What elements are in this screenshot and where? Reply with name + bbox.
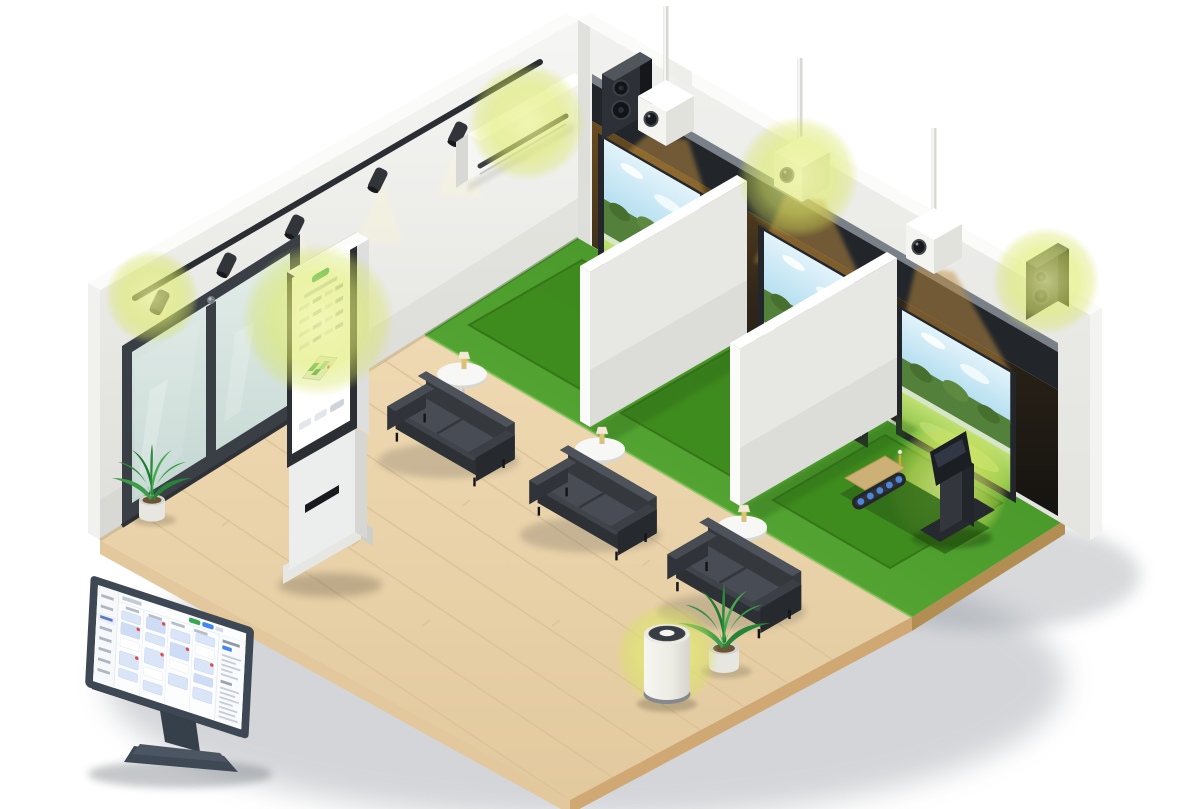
projector-2-glow xyxy=(737,116,859,238)
speaker-right-glow xyxy=(992,227,1100,335)
kiosk-glow xyxy=(241,243,395,397)
track-light-glow xyxy=(105,250,199,344)
air-conditioner-glow xyxy=(468,63,586,181)
illustration-stage xyxy=(0,0,1200,809)
golf-ball xyxy=(898,450,902,454)
scene-canvas xyxy=(0,0,1200,809)
